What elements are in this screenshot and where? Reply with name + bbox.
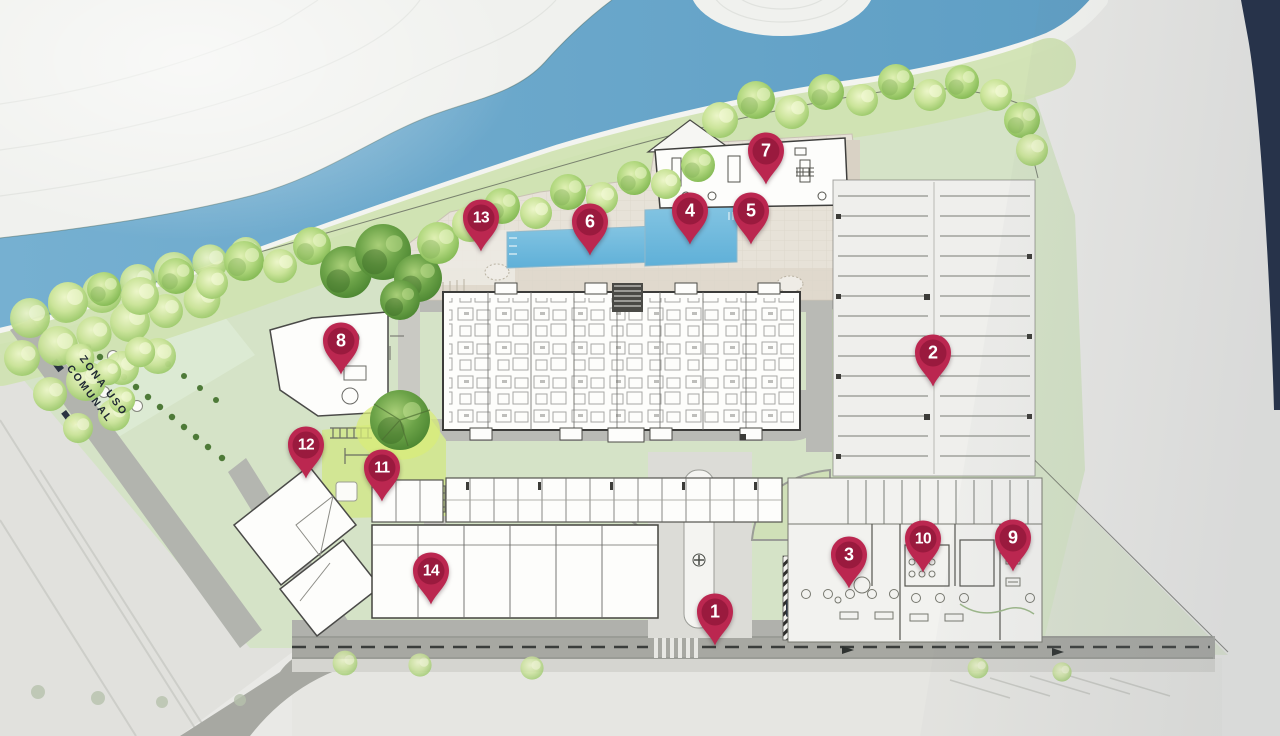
- marker-14: 14: [409, 550, 453, 608]
- marker-number: 2: [911, 332, 955, 375]
- marker-number: 6: [568, 201, 612, 244]
- marker-1: 1: [693, 591, 737, 649]
- apartment-building: [443, 283, 800, 442]
- marker-number: 9: [991, 517, 1035, 560]
- marker-number: 5: [729, 190, 773, 233]
- marker-number: 11: [360, 447, 404, 490]
- marker-number: 8: [319, 320, 363, 363]
- marker-7: 7: [744, 130, 788, 188]
- marker-10: 10: [901, 518, 945, 576]
- marker-4: 4: [668, 190, 712, 248]
- marker-number: 13: [459, 197, 503, 240]
- marker-number: 12: [284, 424, 328, 467]
- marker-6: 6: [568, 201, 612, 259]
- marker-2: 2: [911, 332, 955, 390]
- marker-13: 13: [459, 197, 503, 255]
- marker-number: 10: [901, 518, 945, 561]
- marker-number: 3: [827, 534, 871, 577]
- marker-11: 11: [360, 447, 404, 505]
- marker-number: 14: [409, 550, 453, 593]
- marker-5: 5: [729, 190, 773, 248]
- marker-number: 4: [668, 190, 712, 233]
- site-plan-photo: ZONA USO COMUNAL 1234567891011121314: [0, 0, 1280, 736]
- marker-8: 8: [319, 320, 363, 378]
- marker-number: 7: [744, 130, 788, 173]
- marker-number: 1: [693, 591, 737, 634]
- site-plan-graphic: [0, 0, 1280, 736]
- marker-9: 9: [991, 517, 1035, 575]
- marker-12: 12: [284, 424, 328, 482]
- marker-3: 3: [827, 534, 871, 592]
